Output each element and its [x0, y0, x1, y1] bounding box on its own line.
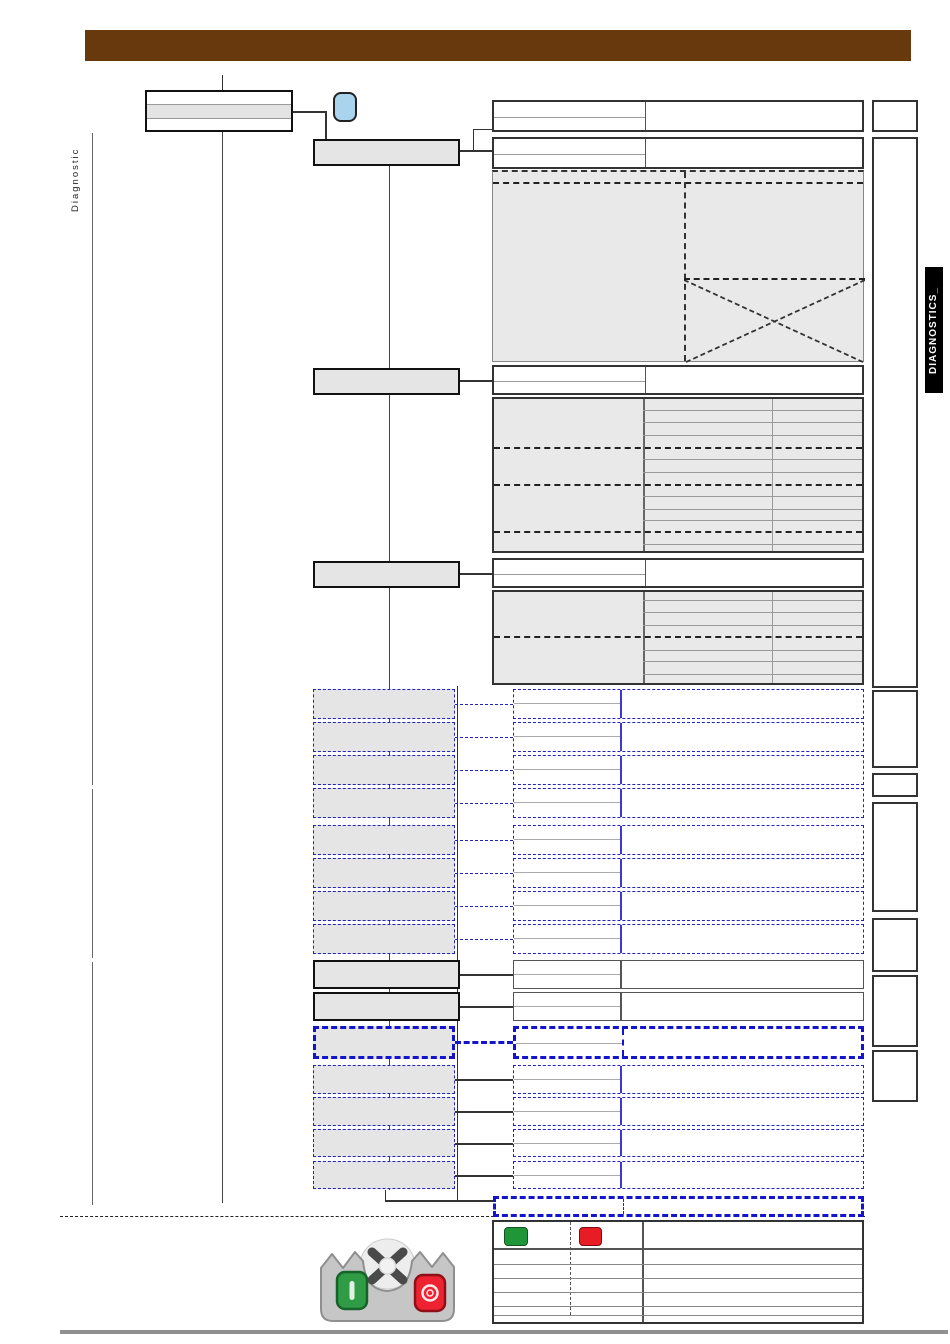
- grid-line: [643, 600, 862, 601]
- detail-row: [513, 992, 864, 1021]
- green-start-button-icon: [337, 1272, 367, 1309]
- page-ref-box: [872, 690, 918, 768]
- detail-header-table: [492, 558, 864, 588]
- row-divider: [620, 1162, 622, 1188]
- manual-page: Diagnostic: [0, 0, 950, 1344]
- detail-row-dashed: [513, 722, 864, 752]
- connector-dashed: [455, 704, 513, 705]
- connector-line: [473, 129, 493, 131]
- cell-midline: [494, 381, 645, 382]
- menu-node-dashed: [313, 1065, 455, 1094]
- diagnostic-handset-icon: [315, 1230, 460, 1325]
- grid-line: [643, 410, 862, 411]
- connector-line: [455, 1079, 513, 1081]
- page-ref-box: [872, 802, 918, 912]
- grid-line: [643, 472, 862, 473]
- menu-node: [313, 960, 460, 989]
- page-ref-box: [872, 1050, 918, 1102]
- cell-divider: [645, 367, 646, 393]
- row-midline: [514, 1143, 620, 1144]
- menu-node: [313, 368, 460, 395]
- page-ref-box: [872, 918, 918, 972]
- branch-trunk-line: [457, 686, 459, 1200]
- menu-node-dashed: [313, 1161, 455, 1189]
- menu-node-dashed: [313, 825, 455, 855]
- connector-line: [473, 129, 475, 152]
- grid-line: [643, 520, 862, 521]
- row-midline: [514, 769, 620, 770]
- key-row-line: [494, 1292, 862, 1293]
- grid-line: [643, 650, 862, 651]
- cell-midline: [494, 117, 645, 118]
- detail-row: [513, 960, 864, 989]
- menu-node-dashed: [313, 689, 455, 719]
- row-midline: [514, 736, 620, 737]
- detail-row-dashed: [513, 825, 864, 855]
- chapter-thumb-tab: DIAGNOSTICS_: [925, 267, 943, 393]
- key-header-line: [494, 1248, 862, 1250]
- green-start-button-icon: [504, 1227, 528, 1246]
- page-ref-box: [872, 975, 918, 1047]
- row-divider: [620, 859, 622, 887]
- row-midline: [514, 1079, 620, 1080]
- menu-node-dashed: [313, 722, 455, 752]
- row-divider: [620, 1098, 622, 1125]
- page-ref-box: [872, 773, 918, 797]
- connector-dashed: [455, 803, 513, 804]
- key-row-line: [494, 1264, 862, 1265]
- menu-node-dashed-bold: [313, 1026, 455, 1059]
- row-midline: [514, 802, 620, 803]
- connector-dashed: [455, 873, 513, 874]
- connector-dashed: [455, 939, 513, 940]
- detail-row-dashed: [513, 858, 864, 888]
- key-column-divider: [642, 1222, 644, 1322]
- row-midline: [514, 839, 620, 840]
- chapter-thumb-tab-label: DIAGNOSTICS_: [925, 267, 943, 393]
- row-divider: [622, 1029, 624, 1056]
- red-stop-button-icon: [579, 1227, 602, 1246]
- detail-row-dashed: [513, 891, 864, 921]
- menu-node-dashed: [313, 1129, 455, 1157]
- row-divider: [620, 789, 622, 817]
- key-dashed-divider: [570, 1222, 571, 1315]
- root-node: [145, 90, 293, 132]
- grid-line: [643, 422, 862, 423]
- row-divider: [620, 892, 622, 920]
- connector-line: [455, 1175, 513, 1177]
- value-grid-table: [492, 397, 864, 553]
- key-row-line: [494, 1278, 862, 1279]
- menu-node-dashed: [313, 891, 455, 921]
- value-grid-table: [492, 590, 864, 685]
- left-bracket-line: [92, 133, 94, 785]
- menu-node: [313, 561, 460, 588]
- connector-line: [460, 1006, 513, 1008]
- connector-dashed-bold: [455, 1041, 513, 1044]
- detail-row-dashed: [513, 689, 864, 719]
- row-divider: [620, 723, 622, 751]
- row-divider: [620, 993, 622, 1020]
- diagnostic-side-label: Diagnostic: [70, 122, 81, 212]
- detail-row-dashed: [513, 1097, 864, 1126]
- detail-row-dashed-bold: [493, 1196, 864, 1217]
- row-divider: [620, 925, 622, 953]
- menu-node: [313, 992, 460, 1021]
- root-node-band: [147, 104, 291, 119]
- detail-row-dashed-bold: [513, 1026, 864, 1059]
- menu-node-dashed: [313, 858, 455, 888]
- cell-divider: [645, 560, 646, 586]
- detail-row-dashed: [513, 1065, 864, 1094]
- red-stop-button-icon: [415, 1275, 445, 1311]
- dotted-grid-line: [494, 447, 862, 449]
- row-midline: [514, 1006, 620, 1007]
- dotted-grid-line: [494, 484, 862, 486]
- row-midline: [514, 1111, 620, 1112]
- grid-line: [643, 612, 862, 613]
- row-divider: [620, 756, 622, 784]
- row-midline: [516, 1043, 622, 1044]
- row-divider: [620, 826, 622, 854]
- key-row-line: [494, 1306, 862, 1307]
- grid-line: [643, 625, 862, 626]
- detail-row-dashed: [513, 1129, 864, 1157]
- row-midline: [514, 974, 620, 975]
- menu-node-dashed: [313, 924, 455, 954]
- detail-header-table: [492, 365, 864, 395]
- grid-line: [643, 435, 862, 436]
- left-bracket-line: [92, 962, 94, 1205]
- key-table: [492, 1220, 864, 1324]
- grid-line: [643, 674, 862, 675]
- row-midline: [514, 938, 620, 939]
- grid-line: [643, 661, 862, 662]
- page-ref-box: [872, 137, 918, 688]
- root-stub-line: [222, 75, 224, 90]
- connector-line: [460, 974, 513, 976]
- connector-dashed: [455, 737, 513, 738]
- connector-line: [325, 111, 327, 140]
- diagnostic-tool-icon: [333, 92, 357, 122]
- screen-panel: [492, 170, 864, 362]
- cell-midline: [494, 154, 645, 155]
- connector-dashed: [455, 840, 513, 841]
- row-midline: [514, 703, 620, 704]
- connector-line: [460, 380, 492, 382]
- grid-line: [643, 459, 862, 460]
- page-ref-box: [872, 100, 918, 132]
- detail-row-dashed: [513, 788, 864, 818]
- key-row-line: [494, 1315, 862, 1316]
- row-midline: [514, 1175, 620, 1176]
- dotted-divider: [493, 182, 863, 184]
- menu-node-dashed: [313, 1097, 455, 1126]
- connector-line: [455, 1143, 513, 1145]
- connector-dashed: [455, 770, 513, 771]
- dotted-grid-line: [494, 636, 862, 638]
- grid-line: [643, 496, 862, 497]
- connector-line: [455, 1111, 513, 1113]
- dotted-grid-line: [494, 531, 862, 533]
- detail-row-dashed: [513, 1161, 864, 1189]
- row-midline: [514, 872, 620, 873]
- menu-node-dashed: [313, 755, 455, 785]
- connector-line: [460, 573, 492, 575]
- grid-line: [643, 544, 862, 545]
- cell-midline: [494, 574, 645, 575]
- cell-divider: [645, 102, 646, 130]
- detail-row-dashed: [513, 755, 864, 785]
- row-divider: [623, 1199, 624, 1214]
- menu-node: [313, 139, 460, 166]
- row-divider: [620, 690, 622, 718]
- row-divider: [620, 961, 622, 988]
- chapter-header-bar: [85, 30, 911, 61]
- row-divider: [620, 1066, 622, 1093]
- left-bracket-line: [92, 789, 94, 958]
- detail-header-table: [492, 100, 864, 132]
- grid-line: [643, 509, 862, 510]
- row-midline: [514, 905, 620, 906]
- main-trunk-line: [222, 132, 224, 1203]
- connector-dashed: [455, 906, 513, 907]
- page-footer-rule: [60, 1330, 948, 1334]
- detail-row-dashed: [513, 924, 864, 954]
- menu-node-dashed: [313, 788, 455, 818]
- cell-divider: [645, 139, 646, 167]
- row-divider: [620, 1130, 622, 1156]
- connector-line: [293, 111, 325, 113]
- connector-line: [460, 150, 492, 152]
- detail-header-table: [492, 137, 864, 169]
- trunk-elbow-line: [385, 1200, 493, 1202]
- crossed-out-cell: [684, 280, 865, 363]
